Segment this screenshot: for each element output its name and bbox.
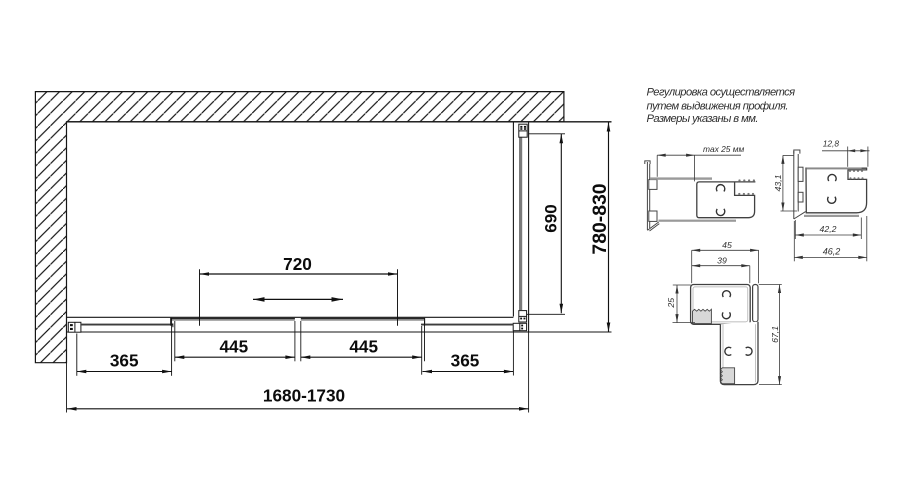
svg-text:780-830: 780-830 (589, 183, 611, 254)
svg-text:365: 365 (451, 351, 480, 371)
svg-text:39: 39 (717, 256, 727, 266)
svg-text:46,2: 46,2 (823, 247, 841, 257)
svg-text:max 25 мм: max 25 мм (703, 144, 745, 154)
svg-text:42,2: 42,2 (820, 224, 837, 234)
svg-text:Регулировка осуществляется: Регулировка осуществляется (647, 87, 796, 99)
svg-text:67,1: 67,1 (770, 326, 780, 343)
svg-text:43,1: 43,1 (773, 174, 783, 191)
svg-text:12,8: 12,8 (823, 138, 840, 148)
svg-text:445: 445 (349, 337, 378, 357)
svg-text:1680-1730: 1680-1730 (263, 385, 345, 405)
svg-text:365: 365 (110, 351, 139, 371)
svg-text:25: 25 (666, 298, 676, 309)
svg-text:путем выдвижения профиля.: путем выдвижения профиля. (647, 100, 788, 112)
svg-text:45: 45 (722, 240, 732, 250)
svg-text:690: 690 (541, 204, 560, 232)
svg-text:720: 720 (283, 254, 312, 274)
svg-text:445: 445 (219, 337, 248, 357)
svg-text:Размеры указаны в мм.: Размеры указаны в мм. (647, 113, 758, 125)
